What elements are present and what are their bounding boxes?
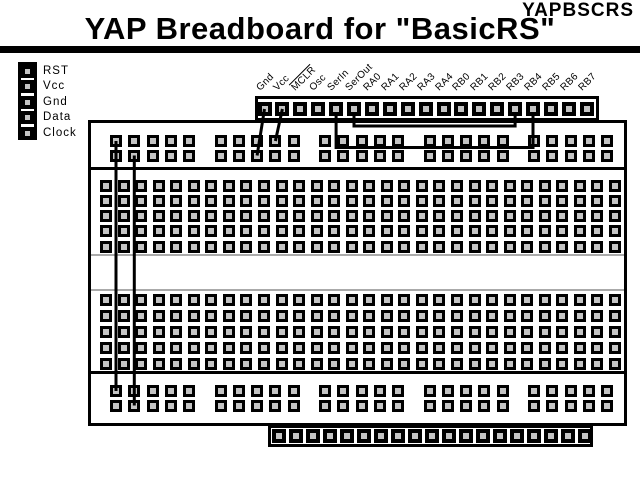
main-top-hole [521, 225, 533, 237]
main-top-hole [258, 241, 270, 253]
main-top-hole [205, 225, 217, 237]
bottom-rail-hole [183, 400, 195, 412]
main-top-hole [135, 241, 147, 253]
breadboard-outline [88, 120, 627, 426]
main-bottom-hole [591, 326, 603, 338]
main-bottom-hole [433, 294, 445, 306]
main-top-hole [556, 225, 568, 237]
main-top-hole [433, 195, 445, 207]
main-top-hole [293, 180, 305, 192]
bottom-header-pin [527, 429, 541, 443]
main-bottom-hole [346, 294, 358, 306]
main-bottom-hole [574, 358, 586, 370]
main-bottom-hole [433, 326, 445, 338]
main-bottom-hole [205, 326, 217, 338]
main-bottom-hole [363, 342, 375, 354]
main-top-hole [416, 180, 428, 192]
bottom-rail-hole [424, 385, 436, 397]
top-rail-hole [374, 150, 386, 162]
main-top-hole [276, 210, 288, 222]
main-top-hole [398, 180, 410, 192]
main-bottom-hole [451, 342, 463, 354]
main-top-hole [504, 210, 516, 222]
main-bottom-hole [153, 342, 165, 354]
main-bottom-hole [486, 358, 498, 370]
main-bottom-hole [433, 310, 445, 322]
main-bottom-hole [469, 342, 481, 354]
top-rail-hole [528, 135, 540, 147]
main-bottom-hole [539, 342, 551, 354]
main-bottom-hole [433, 342, 445, 354]
main-bottom-hole [188, 310, 200, 322]
main-bottom-hole [609, 326, 621, 338]
main-top-hole [293, 210, 305, 222]
main-bottom-hole [504, 310, 516, 322]
bottom-header-pin [459, 429, 473, 443]
main-bottom-hole [363, 294, 375, 306]
main-bottom-hole [486, 326, 498, 338]
main-bottom-hole [574, 326, 586, 338]
main-bottom-hole [293, 342, 305, 354]
main-top-hole [258, 225, 270, 237]
main-top-hole [398, 225, 410, 237]
main-top-hole [574, 210, 586, 222]
main-bottom-hole [293, 294, 305, 306]
main-top-hole [258, 210, 270, 222]
main-top-hole [363, 180, 375, 192]
main-bottom-hole [170, 294, 182, 306]
bottom-rail-hole [528, 385, 540, 397]
bottom-rail-hole [565, 385, 577, 397]
main-top-hole [451, 180, 463, 192]
main-bottom-hole [469, 294, 481, 306]
top-rail-hole [546, 135, 558, 147]
main-bottom-hole [118, 310, 130, 322]
top-header-pin [329, 102, 343, 116]
top-rail-hole [565, 150, 577, 162]
main-top-hole [223, 195, 235, 207]
main-top-hole [363, 195, 375, 207]
main-top-hole [521, 241, 533, 253]
main-top-hole [188, 225, 200, 237]
main-top-hole [100, 225, 112, 237]
left-connector-pin-label: RST [43, 65, 69, 78]
left-connector-pin [21, 65, 34, 78]
main-top-hole [205, 210, 217, 222]
top-header-pin [544, 102, 558, 116]
main-top-hole [504, 195, 516, 207]
main-bottom-hole [170, 358, 182, 370]
main-bottom-hole [451, 310, 463, 322]
main-bottom-hole [609, 342, 621, 354]
main-top-hole [469, 241, 481, 253]
top-rail-hole [147, 150, 159, 162]
main-top-hole [469, 195, 481, 207]
main-bottom-hole [188, 326, 200, 338]
top-rail-hole [460, 150, 472, 162]
main-bottom-hole [170, 342, 182, 354]
main-bottom-hole [574, 294, 586, 306]
bottom-rail-hole [110, 385, 122, 397]
bottom-rail-hole [460, 385, 472, 397]
main-top-hole [276, 241, 288, 253]
main-top-hole [188, 195, 200, 207]
bottom-rail-hole [215, 400, 227, 412]
main-bottom-hole [276, 294, 288, 306]
top-header-pin [562, 102, 576, 116]
bottom-rail-hole [442, 400, 454, 412]
main-top-hole [591, 195, 603, 207]
main-top-hole [311, 180, 323, 192]
main-top-hole [486, 225, 498, 237]
top-rail-hole [424, 135, 436, 147]
main-bottom-hole [276, 342, 288, 354]
title-rule [0, 46, 640, 53]
main-bottom-hole [153, 326, 165, 338]
main-bottom-hole [205, 342, 217, 354]
main-top-hole [381, 210, 393, 222]
main-top-hole [276, 180, 288, 192]
main-top-hole [416, 225, 428, 237]
main-top-hole [153, 225, 165, 237]
main-top-hole [469, 180, 481, 192]
bottom-rail-hole [233, 400, 245, 412]
bottom-rail-hole [319, 400, 331, 412]
main-bottom-hole [328, 358, 340, 370]
main-bottom-hole [381, 294, 393, 306]
main-bottom-hole [240, 310, 252, 322]
main-top-hole [381, 225, 393, 237]
yap-breadboard-diagram: YAPBSCRS YAP Breadboard for "BasicRS" RS… [0, 0, 640, 480]
main-bottom-hole [521, 310, 533, 322]
main-top-hole [363, 210, 375, 222]
main-bottom-hole [223, 326, 235, 338]
left-connector-pin [21, 96, 34, 109]
main-bottom-hole [486, 294, 498, 306]
main-bottom-hole [240, 294, 252, 306]
bottom-rail-hole [215, 385, 227, 397]
main-bottom-hole [416, 358, 428, 370]
main-top-hole [591, 180, 603, 192]
bottom-rail-hole [601, 400, 613, 412]
left-connector-pin-label: Data [43, 111, 71, 124]
main-bottom-hole [416, 342, 428, 354]
main-top-hole [609, 195, 621, 207]
bottom-header-pin [272, 429, 286, 443]
main-top-hole [521, 210, 533, 222]
main-top-hole [205, 180, 217, 192]
main-bottom-hole [504, 326, 516, 338]
main-top-hole [416, 195, 428, 207]
main-bottom-hole [591, 294, 603, 306]
top-rail-hole [251, 135, 263, 147]
main-top-hole [416, 210, 428, 222]
bottom-rail-hole [583, 385, 595, 397]
main-bottom-hole [609, 358, 621, 370]
top-rail-hole [251, 150, 263, 162]
main-top-hole [328, 210, 340, 222]
bottom-header-pin [323, 429, 337, 443]
main-bottom-hole [363, 358, 375, 370]
main-bottom-hole [609, 294, 621, 306]
main-bottom-hole [574, 310, 586, 322]
bottom-rail-hole [337, 385, 349, 397]
bottom-rail-hole [165, 385, 177, 397]
main-bottom-hole [451, 358, 463, 370]
top-header-pin [490, 102, 504, 116]
bottom-header-pin [357, 429, 371, 443]
main-bottom-hole [170, 310, 182, 322]
top-rail-hole [128, 150, 140, 162]
main-top-hole [118, 210, 130, 222]
main-top-hole [153, 210, 165, 222]
main-top-hole [118, 241, 130, 253]
main-top-hole [328, 225, 340, 237]
main-bottom-hole [398, 294, 410, 306]
main-top-hole [539, 195, 551, 207]
main-bottom-hole [469, 310, 481, 322]
main-top-hole [100, 241, 112, 253]
bottom-rail-hole [147, 385, 159, 397]
main-top-hole [170, 241, 182, 253]
main-top-hole [188, 210, 200, 222]
top-rail-hole [165, 150, 177, 162]
top-rail-hole [424, 150, 436, 162]
top-rail-hole [233, 135, 245, 147]
main-bottom-hole [398, 358, 410, 370]
main-bottom-hole [591, 342, 603, 354]
main-top-hole [486, 210, 498, 222]
main-top-hole [328, 241, 340, 253]
main-bottom-hole [153, 310, 165, 322]
main-bottom-hole [205, 310, 217, 322]
top-header-pin [454, 102, 468, 116]
main-top-hole [521, 195, 533, 207]
main-top-hole [258, 180, 270, 192]
bottom-rail-hole [319, 385, 331, 397]
main-top-hole [556, 195, 568, 207]
main-bottom-hole [521, 326, 533, 338]
main-bottom-hole [521, 358, 533, 370]
bottom-rail-hole [546, 385, 558, 397]
main-bottom-hole [346, 358, 358, 370]
top-rail-hole [583, 135, 595, 147]
main-top-hole [328, 195, 340, 207]
main-bottom-hole [539, 358, 551, 370]
main-bottom-hole [539, 310, 551, 322]
top-rail-hole [233, 150, 245, 162]
main-top-hole [170, 225, 182, 237]
main-top-hole [556, 180, 568, 192]
bottom-rail-hole [183, 385, 195, 397]
top-header-pin [401, 102, 415, 116]
main-bottom-hole [258, 294, 270, 306]
main-top-hole [556, 241, 568, 253]
main-bottom-hole [276, 310, 288, 322]
main-top-hole [574, 241, 586, 253]
main-top-hole [223, 225, 235, 237]
main-bottom-hole [311, 310, 323, 322]
main-top-hole [574, 195, 586, 207]
top-rail-hole [497, 150, 509, 162]
main-top-hole [170, 180, 182, 192]
main-bottom-hole [276, 326, 288, 338]
bottom-header-pin [476, 429, 490, 443]
main-bottom-hole [363, 326, 375, 338]
main-top-hole [591, 210, 603, 222]
main-bottom-hole [205, 358, 217, 370]
main-top-hole [118, 180, 130, 192]
main-bottom-hole [311, 342, 323, 354]
main-top-hole [170, 195, 182, 207]
main-top-hole [258, 195, 270, 207]
bottom-header-pin [391, 429, 405, 443]
bottom-rail-hole [356, 400, 368, 412]
top-rail-hole [269, 135, 281, 147]
bottom-rail-hole [110, 400, 122, 412]
main-top-hole [223, 210, 235, 222]
bottom-rail-hole [374, 385, 386, 397]
main-bottom-hole [521, 294, 533, 306]
top-header-pin [508, 102, 522, 116]
main-bottom-hole [240, 326, 252, 338]
main-top-hole [591, 241, 603, 253]
top-rail-hole [546, 150, 558, 162]
main-bottom-hole [188, 358, 200, 370]
top-header-pin [311, 102, 325, 116]
top-rail-hole [215, 150, 227, 162]
bottom-rail-hole [233, 385, 245, 397]
main-top-hole [276, 195, 288, 207]
top-header-pin [419, 102, 433, 116]
main-top-hole [539, 225, 551, 237]
main-bottom-hole [346, 342, 358, 354]
bottom-rail-hole [128, 400, 140, 412]
top-rail-hole [460, 135, 472, 147]
main-top-hole [293, 225, 305, 237]
main-bottom-hole [363, 310, 375, 322]
bottom-rail-hole [546, 400, 558, 412]
main-top-hole [609, 180, 621, 192]
top-rail-hole [288, 150, 300, 162]
main-top-hole [223, 241, 235, 253]
main-bottom-hole [398, 342, 410, 354]
main-bottom-hole [609, 310, 621, 322]
main-top-hole [398, 241, 410, 253]
main-top-hole [153, 241, 165, 253]
main-top-hole [504, 225, 516, 237]
top-rail-hole [337, 150, 349, 162]
top-rail-hole [583, 150, 595, 162]
top-rail-hole [110, 150, 122, 162]
main-top-hole [153, 195, 165, 207]
top-rail-hole [319, 150, 331, 162]
main-bottom-hole [118, 294, 130, 306]
main-top-hole [398, 210, 410, 222]
main-top-hole [469, 225, 481, 237]
main-top-hole [135, 195, 147, 207]
main-top-hole [311, 241, 323, 253]
top-header-pin [526, 102, 540, 116]
main-top-hole [433, 241, 445, 253]
main-bottom-hole [591, 310, 603, 322]
bottom-rail-hole [374, 400, 386, 412]
main-top-hole [346, 210, 358, 222]
bottom-header-pin [493, 429, 507, 443]
main-bottom-hole [504, 342, 516, 354]
bottom-rail-hole [424, 400, 436, 412]
main-bottom-hole [188, 342, 200, 354]
top-rail-hole [128, 135, 140, 147]
bottom-header-pin [510, 429, 524, 443]
bottom-header-pin [374, 429, 388, 443]
top-rail-hole [478, 150, 490, 162]
main-top-hole [504, 180, 516, 192]
bottom-rail-hole [601, 385, 613, 397]
top-rail-hole [215, 135, 227, 147]
main-bottom-hole [486, 310, 498, 322]
main-bottom-hole [398, 326, 410, 338]
center-channel-line-top [91, 254, 624, 256]
bottom-rail-hole [251, 400, 263, 412]
main-bottom-hole [539, 294, 551, 306]
main-top-hole [486, 241, 498, 253]
main-top-hole [223, 180, 235, 192]
bottom-rail-hole [269, 385, 281, 397]
main-bottom-hole [416, 310, 428, 322]
main-top-hole [609, 210, 621, 222]
main-bottom-hole [223, 358, 235, 370]
left-connector-pin [21, 127, 34, 140]
main-top-hole [118, 195, 130, 207]
bottom-header-pin [306, 429, 320, 443]
top-rail-hole [288, 135, 300, 147]
main-bottom-hole [328, 294, 340, 306]
bottom-rail-hole [288, 385, 300, 397]
top-rail-hole [497, 135, 509, 147]
main-bottom-hole [398, 310, 410, 322]
main-bottom-hole [118, 326, 130, 338]
main-bottom-hole [328, 342, 340, 354]
top-rail-hole [356, 135, 368, 147]
main-top-hole [539, 241, 551, 253]
bottom-rail-hole [565, 400, 577, 412]
main-bottom-hole [188, 294, 200, 306]
top-header-pin [258, 102, 272, 116]
main-bottom-hole [381, 310, 393, 322]
center-channel-line-bottom [91, 289, 624, 291]
main-top-hole [293, 241, 305, 253]
main-bottom-hole [135, 326, 147, 338]
main-bottom-hole [100, 358, 112, 370]
main-top-hole [276, 225, 288, 237]
main-top-hole [574, 225, 586, 237]
main-bottom-hole [346, 326, 358, 338]
main-bottom-hole [293, 326, 305, 338]
main-bottom-hole [118, 358, 130, 370]
main-bottom-hole [223, 294, 235, 306]
bottom-header-pin [289, 429, 303, 443]
top-rail-hole [374, 135, 386, 147]
main-bottom-hole [469, 326, 481, 338]
main-top-hole [486, 195, 498, 207]
top-header-pin [293, 102, 307, 116]
main-bottom-hole [504, 358, 516, 370]
main-top-hole [293, 195, 305, 207]
main-top-hole [609, 241, 621, 253]
top-rail-hole [601, 150, 613, 162]
main-top-hole [556, 210, 568, 222]
